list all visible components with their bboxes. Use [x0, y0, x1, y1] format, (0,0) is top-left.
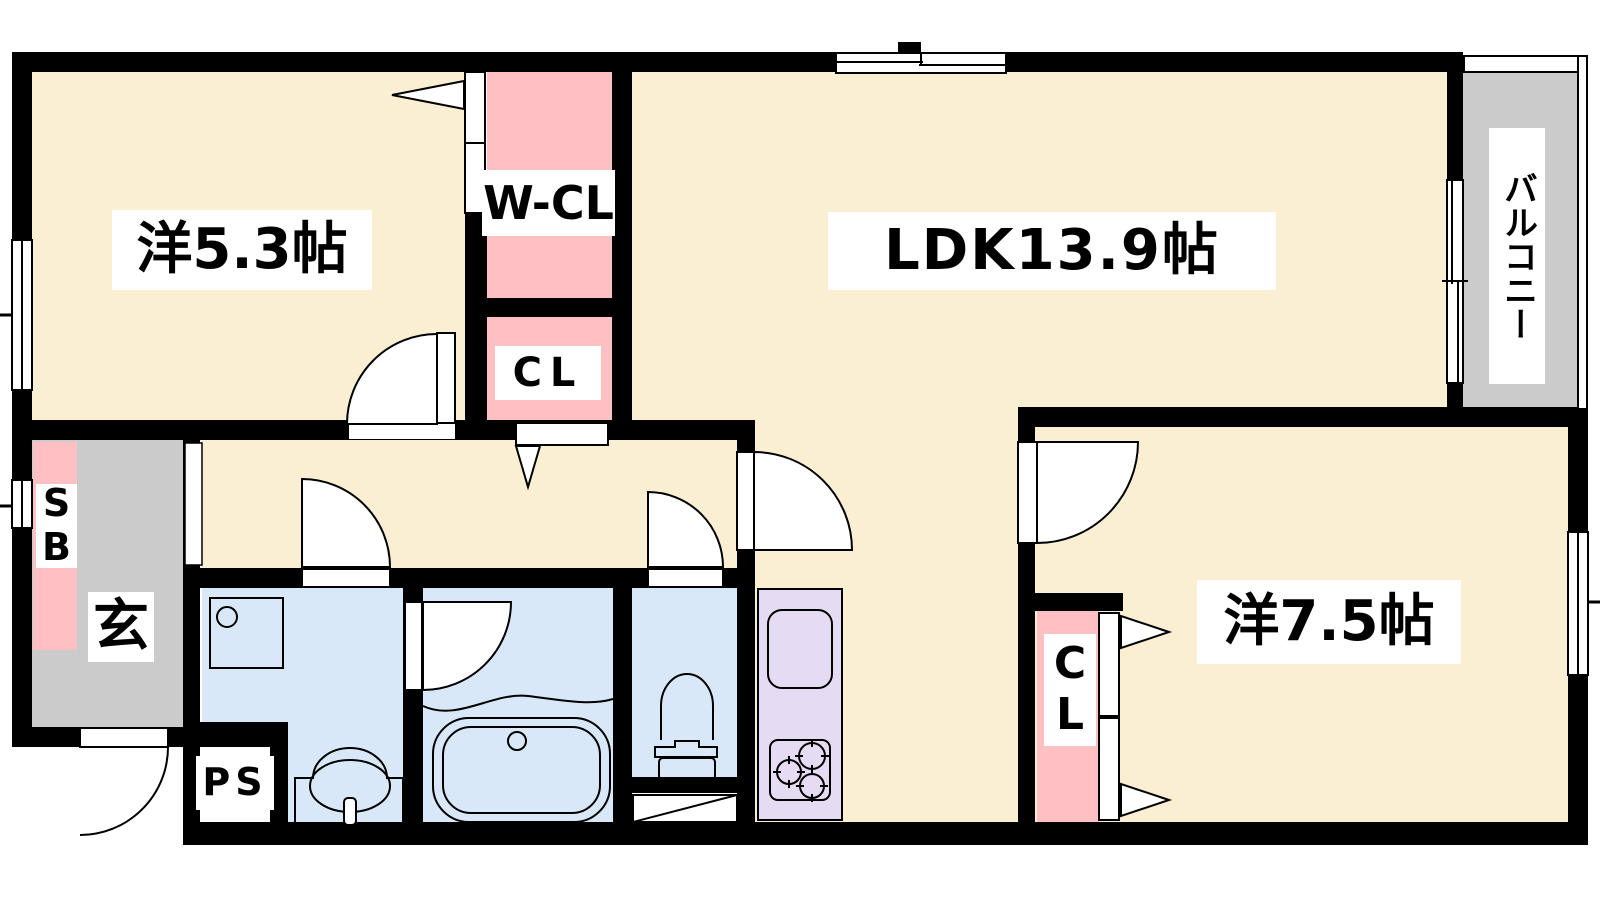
- folding-door-wcl: [392, 72, 485, 213]
- balcony-sliding-door-icon: [1442, 180, 1468, 383]
- kitchen-stove-icon: [770, 739, 830, 802]
- door-ldk: [737, 452, 852, 550]
- window-ldk-top-icon: [836, 53, 1006, 73]
- balcony-label: バルコニー: [1489, 128, 1545, 384]
- kitchen-sink-icon: [768, 610, 832, 688]
- door-room53: [347, 333, 455, 439]
- room-7-5-label: 洋7.5帖: [1197, 580, 1461, 664]
- toilet-counter-icon: [633, 795, 737, 822]
- washbasin-icon: [295, 748, 403, 825]
- walkin-closet-label: W-CL: [482, 170, 615, 236]
- window-room53-icon: [0, 240, 32, 390]
- ldk-label: LDK13.9帖: [828, 212, 1276, 290]
- door-entrance: [80, 728, 168, 835]
- room-5-3-label: 洋5.3帖: [112, 210, 372, 290]
- floorplan-canvas: 洋5.3帖 W-CL CL LDK13.9帖 バルコニー S B 玄 PS C …: [0, 0, 1600, 900]
- shoebox-label: S B: [36, 484, 77, 568]
- entrance-label: 玄: [88, 592, 154, 662]
- folding-door-cl-bedroom: [1099, 613, 1169, 820]
- bathtub-icon: [423, 696, 613, 822]
- folding-door-cl-hall: [516, 423, 608, 487]
- door-room75: [1018, 442, 1138, 543]
- door-washroom: [302, 479, 390, 587]
- pipe-space-label: PS: [196, 756, 274, 810]
- window-entrance-icon: [0, 480, 32, 528]
- entrance-step: [185, 443, 202, 565]
- hall-closet-label: CL: [495, 346, 601, 400]
- toilet-icon: [655, 674, 717, 780]
- window-room75-icon: [1568, 532, 1600, 675]
- bedroom-closet-label: C L: [1044, 634, 1096, 746]
- door-bathroom: [405, 602, 511, 690]
- washing-machine-pan-icon: [210, 598, 283, 668]
- door-toilet: [648, 492, 723, 587]
